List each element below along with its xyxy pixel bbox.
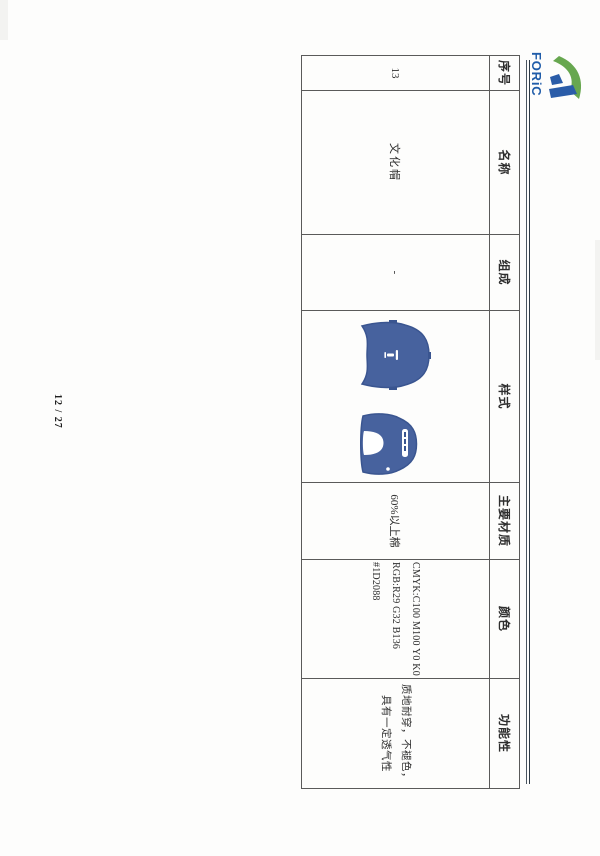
cell-function: 质地耐穿，不褪色， 具有一定透气性 [302,679,490,789]
scanned-document-page: FORiC 序号 名称 组成 样式 主要材质 颜色 功能性 13 文化帽 [0,0,600,856]
foric-logo-icon [544,54,586,102]
header-name: 名称 [490,91,520,235]
spec-table-header-row: 序号 名称 组成 样式 主要材质 颜色 功能性 [490,56,520,789]
cap-front-image [357,319,431,391]
cell-material: 60%以上棉 [302,483,490,560]
landscape-page: FORiC 序号 名称 组成 样式 主要材质 颜色 功能性 13 文化帽 [0,0,600,856]
scan-artifact [595,240,600,360]
spec-table: 序号 名称 组成 样式 主要材质 颜色 功能性 13 文化帽 - [301,55,520,789]
cap-back-image [359,412,418,476]
function-line-1: 质地耐穿，不褪色， [396,679,416,788]
header-serial: 序号 [490,56,520,91]
header-style: 样式 [490,311,520,483]
cell-composition: - [302,235,490,311]
brand-name: FORiC [529,52,544,96]
cell-name: 文化帽 [302,91,490,235]
header-material: 主要材质 [490,483,520,560]
letterhead-rule [526,60,530,784]
header-composition: 组成 [490,235,520,311]
page-number: 12 / 27 [52,394,63,429]
cell-serial: 13 [302,56,490,91]
spec-table-data-row: 13 文化帽 - [302,56,490,789]
cell-style [302,311,490,483]
function-line-2: 具有一定透气性 [376,679,396,788]
color-hex: #1D2088 [366,562,386,678]
cell-color: CMYK:C100 M100 Y0 K0 RGB:R29 G32 B136 #1… [302,560,490,679]
header-color: 颜色 [490,560,520,679]
color-rgb: RGB:R29 G32 B136 [386,562,406,678]
header-function: 功能性 [490,679,520,789]
scan-artifact [0,0,8,40]
color-cmyk: CMYK:C100 M100 Y0 K0 [406,562,426,678]
